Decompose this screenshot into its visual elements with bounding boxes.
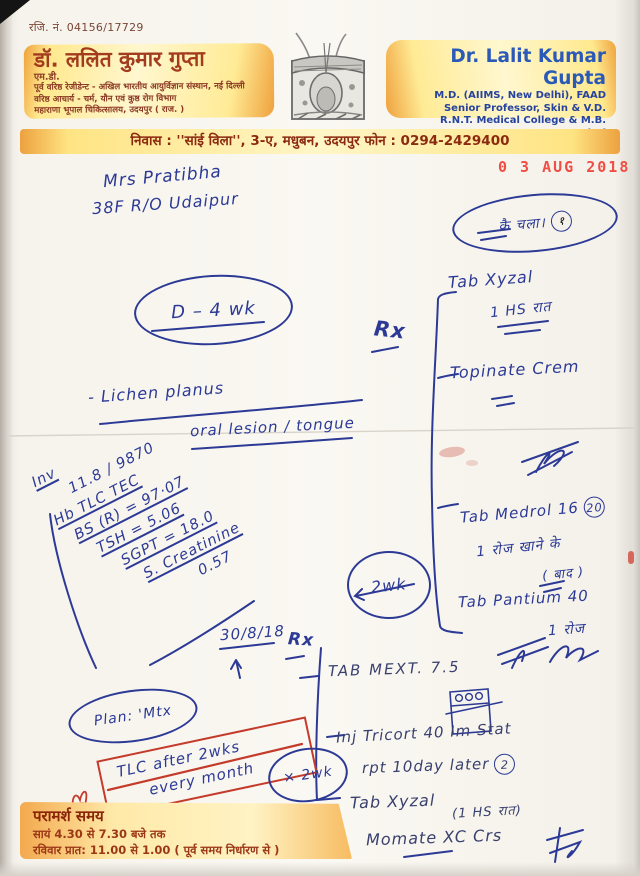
followup-date: 30/8/18 — [219, 622, 285, 644]
doctor-name-hindi: डॉ. ललित कुमार गुप्ता — [34, 46, 266, 72]
residence-address-bar: निवास : ''सांई विला'', 3-ए, मधुबन, उदयपु… — [20, 129, 620, 154]
rx-symbol-2: Rx — [287, 629, 314, 651]
registration-number: रजि. नं. 04156/17729 — [29, 20, 144, 35]
injection-tricort: Inj Tricort 40 Im Stat — [336, 719, 512, 746]
letterhead-left-hindi: डॉ. ललित कुमार गुप्ता एम.डी. पूर्व वरिष्… — [24, 43, 275, 119]
patient-name: Mrs Pratibha — [102, 162, 222, 192]
repeat-text: rpt 10day later — [362, 755, 490, 777]
scan-edge-right — [630, 0, 640, 876]
plan-circle: Plan: 'Mtx — [65, 681, 201, 751]
consultation-hours-bar: परामर्श समय सायं 4.30 से 7.30 बजे तक रवि… — [20, 802, 352, 859]
rx-symbol: Rx — [373, 316, 407, 343]
credential-line: Senior Professor, Skin & V.D. — [392, 103, 606, 116]
patient-details: 38F R/O Udaipur — [92, 189, 240, 218]
medrol-text: Tab Medrol 16 — [459, 498, 579, 526]
prescription-scan: रजि. नं. 04156/17729 डॉ. ललित कुमार गुप्… — [0, 0, 640, 876]
medicine-momate: Momate XC Crs — [366, 826, 503, 850]
reference-circle: कै चला। १ — [450, 187, 620, 259]
scan-corner-artifact — [0, 0, 30, 24]
xyzal-dose: 1 HS रात — [489, 297, 552, 322]
medicine-xyzal-2: Tab Xyzal — [350, 791, 436, 813]
medrol-qty-circled: 20 — [583, 496, 606, 519]
consultation-hours-line: सायं 4.30 से 7.30 बजे तक — [33, 826, 352, 842]
medicine-pantium: Tab Pantium 40 — [458, 587, 590, 612]
letterhead-right-english: Dr. Lalit Kumar Gupta M.D. (AIIMS, New D… — [386, 40, 616, 118]
medicine-cream: Topinate Crem — [450, 357, 580, 383]
medicine-methotrexate: TAB MEXT. 7.5 — [328, 658, 461, 681]
reference-number-circled: १ — [550, 209, 573, 232]
credential-line: M.D. (AIIMS, New Delhi), FAAD — [392, 90, 606, 103]
medicine-xyzal: Tab Xyzal — [447, 267, 533, 292]
diagnosis-site: oral lesion / tongue — [190, 414, 356, 441]
consultation-hours-line: रविवार प्रात: 11.00 से 1.00 ( पूर्व समय … — [33, 842, 352, 858]
date-stamp: 0 3 AUG 2018 — [498, 158, 630, 176]
credential-line: महाराणा भूपाल चिकित्सालय, उदयपुर ( राज. … — [34, 104, 266, 117]
consultation-hours-title: परामर्श समय — [33, 807, 352, 826]
credential-line: पूर्व वरिष्ठ रेजीडेन्ट - अखिल भारतीय आयु… — [34, 81, 266, 94]
scan-edge-bottom — [0, 862, 640, 876]
medrol-dose-note: ( बाद ) — [541, 562, 585, 584]
reference-text: कै चला। — [498, 213, 547, 236]
duration-text: D – 4 wk — [171, 297, 257, 322]
duration-circle: D – 4 wk — [132, 271, 294, 349]
scan-edge-left — [0, 0, 13, 876]
plan-text: Plan: 'Mtx — [93, 703, 173, 730]
review-2-text: × 2wk — [282, 764, 333, 787]
medrol-dose: 1 रोज खाने के — [475, 534, 561, 562]
doctor-name-english: Dr. Lalit Kumar Gupta — [392, 46, 606, 90]
diagnosis-lichen-planus: - Lichen planus — [88, 378, 225, 406]
repeat-count-circled: 2 — [494, 753, 516, 775]
clinic-logo-skin-diagram-icon — [272, 31, 384, 125]
xyzal-2-dose: (1 HS रात) — [452, 800, 523, 822]
medicine-medrol: Tab Medrol 1620 — [459, 496, 605, 530]
injection-repeat-note: rpt 10day later2 — [362, 753, 516, 779]
review-text: 2wk — [370, 574, 407, 597]
pantium-dose: 1 रोज — [547, 619, 585, 641]
review-circle: 2wk — [347, 551, 431, 619]
